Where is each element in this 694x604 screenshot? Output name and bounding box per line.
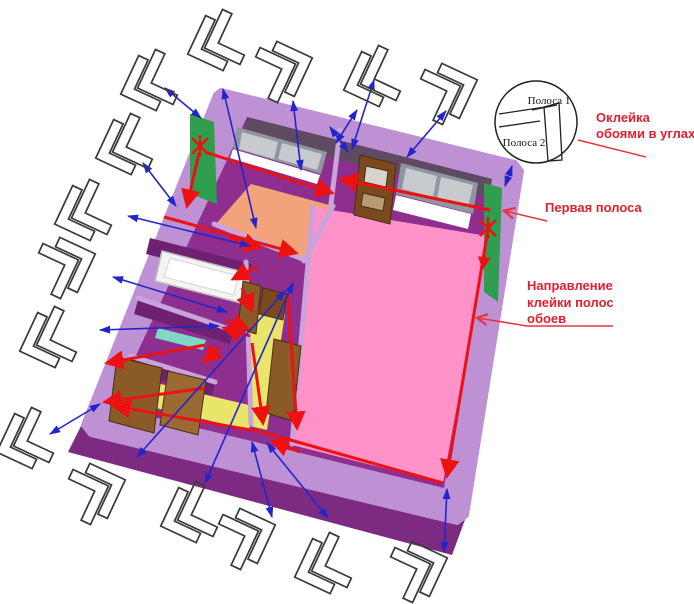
label-direction-line3: обоев (527, 311, 566, 326)
label-direction-line2: клейки полос (527, 295, 614, 310)
corner-symbol-icon (295, 527, 365, 599)
corner-symbol-icon (407, 58, 477, 130)
corner-symbol-icon (0, 402, 67, 474)
corner-symbol-icon (20, 301, 90, 373)
label-corner-gluing-line2: обоями в углах (596, 126, 694, 141)
corner-symbol-icon (344, 40, 414, 112)
diagram-canvas: Полоса 1 Полоса 2 Оклейка обоями в углах… (0, 0, 694, 604)
corner-symbol-icon (25, 232, 95, 304)
first-strip-kitchen (190, 114, 217, 204)
apartment-floor-plan (68, 91, 521, 555)
corner-symbol-icon (55, 458, 125, 530)
corner-symbol-icon (55, 174, 125, 246)
strip1-label: Полоса 1 (528, 95, 571, 107)
label-first-strip: Первая полоса (545, 200, 642, 215)
corner-detail-callout: Полоса 1 Полоса 2 (495, 81, 577, 163)
corner-symbol-icon (96, 108, 166, 180)
strip2-label: Полоса 2 (503, 137, 546, 149)
leader-corner-gluing (578, 140, 646, 157)
wallpaper-direction-diagram: Полоса 1 Полоса 2 Оклейка обоями в углах… (0, 0, 694, 604)
corner-symbol-icon (121, 44, 191, 116)
corner-symbol-icon (188, 4, 258, 76)
label-direction-line1: Направление (527, 278, 613, 293)
label-corner-gluing-line1: Оклейка (596, 110, 651, 125)
corner-symbol-icon (205, 503, 275, 575)
